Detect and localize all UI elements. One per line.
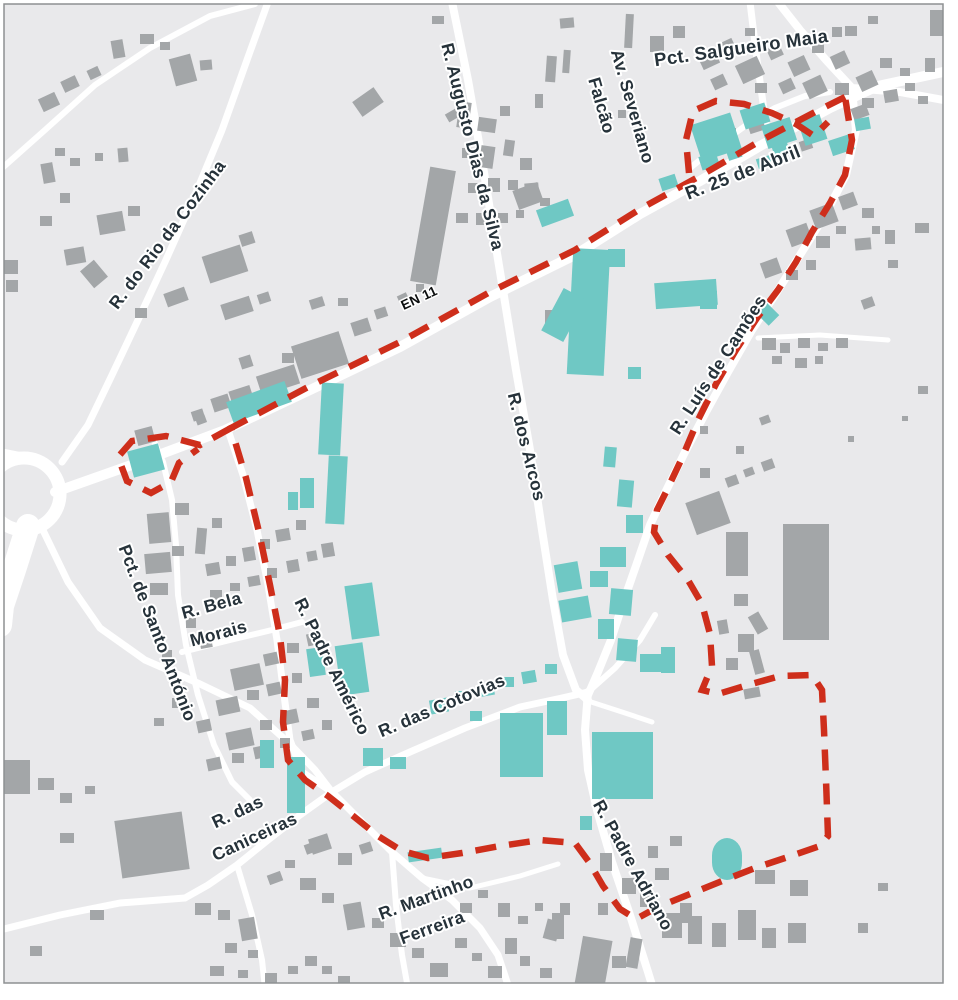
building (712, 923, 726, 947)
building (238, 970, 248, 978)
building (535, 903, 543, 911)
highlighted-building (640, 654, 662, 672)
building (210, 966, 224, 976)
highlighted-building (609, 588, 633, 616)
building (855, 237, 872, 250)
highlighted-building (325, 456, 348, 525)
building (734, 594, 748, 606)
building (648, 846, 658, 858)
building (612, 956, 626, 968)
building (680, 903, 692, 923)
building (498, 903, 510, 917)
highlighted-building (300, 478, 314, 508)
building (845, 26, 857, 36)
building (248, 950, 258, 958)
building (880, 58, 892, 68)
building (918, 386, 928, 394)
highlighted-building (580, 816, 592, 830)
highlighted-building (590, 571, 608, 587)
highlighted-building (616, 638, 638, 662)
building (902, 416, 908, 421)
building (195, 903, 211, 915)
building (888, 260, 898, 268)
building (736, 446, 744, 454)
highlighted-building (363, 748, 383, 766)
building (38, 778, 54, 790)
highlighted-building (617, 479, 634, 507)
building (508, 180, 518, 190)
building (816, 236, 830, 248)
building (673, 26, 685, 38)
highlighted-building (318, 382, 344, 455)
building (600, 853, 612, 871)
building (505, 938, 517, 954)
building (85, 786, 95, 794)
building (738, 634, 754, 652)
building (700, 426, 708, 434)
building (218, 910, 230, 920)
building (265, 973, 277, 983)
highlighted-building (626, 515, 643, 533)
building (172, 546, 184, 556)
building (670, 836, 682, 846)
building (762, 928, 776, 948)
building (285, 860, 295, 868)
building (154, 718, 164, 726)
building (560, 17, 575, 28)
building (144, 552, 172, 574)
highlighted-building (521, 670, 537, 684)
building (848, 436, 854, 442)
building (260, 720, 272, 730)
building (147, 512, 172, 544)
building (790, 880, 808, 896)
building (226, 556, 236, 566)
building (832, 27, 842, 37)
building (806, 260, 816, 270)
building (915, 223, 929, 233)
building (282, 353, 294, 363)
building (836, 338, 848, 348)
town-map-canvas: R. do Rio da CozinhaR. Augusto Dias da S… (0, 0, 958, 1000)
building (798, 338, 810, 348)
building (64, 246, 86, 265)
highlighted-building (260, 740, 274, 768)
building (516, 210, 524, 218)
building (95, 153, 103, 161)
highlighted-building (628, 367, 641, 379)
building (535, 94, 543, 108)
building (55, 148, 65, 156)
map-page: R. do Rio da CozinhaR. Augusto Dias da S… (0, 0, 958, 1000)
building (175, 503, 189, 515)
building (862, 208, 874, 218)
building (726, 658, 738, 670)
building (925, 58, 935, 72)
building (755, 870, 775, 884)
building (296, 520, 306, 530)
building (795, 358, 807, 368)
building (518, 916, 528, 924)
highlighted-building (603, 447, 617, 468)
building (60, 833, 74, 843)
highlighted-building (854, 117, 871, 131)
building (868, 16, 878, 24)
building (905, 83, 915, 91)
highlighted-building (554, 561, 582, 593)
building (338, 976, 350, 986)
highlighted-building (547, 701, 567, 735)
building (322, 720, 332, 730)
building (128, 206, 140, 216)
building (117, 148, 128, 163)
building (772, 356, 782, 364)
building (286, 559, 300, 573)
building (288, 966, 298, 974)
building (338, 298, 348, 306)
building (738, 910, 756, 940)
building (472, 953, 482, 961)
highlighted-building (598, 619, 614, 639)
building (755, 83, 767, 93)
highlighted-building (390, 757, 406, 769)
highlighted-building (287, 757, 305, 813)
building (836, 226, 846, 234)
building (135, 308, 147, 318)
building (455, 938, 467, 948)
highlighted-building (545, 664, 557, 674)
building (212, 518, 222, 528)
building (788, 923, 806, 943)
building (60, 793, 72, 803)
building (90, 910, 104, 920)
building (275, 528, 291, 542)
highlighted-building (700, 291, 717, 309)
building (520, 158, 532, 170)
building (456, 213, 468, 223)
building (247, 690, 259, 700)
building (432, 16, 444, 24)
building (247, 575, 261, 587)
building (114, 812, 189, 879)
building (815, 356, 823, 364)
building (412, 948, 424, 958)
highlighted-building (288, 492, 298, 510)
building (307, 698, 319, 708)
building (338, 853, 352, 865)
building (305, 956, 317, 966)
building (322, 966, 332, 974)
highlighted-building (608, 249, 625, 267)
building (818, 343, 828, 351)
building (883, 89, 899, 103)
building (700, 468, 710, 478)
highlighted-building (592, 732, 653, 799)
building (60, 193, 70, 203)
building (545, 56, 557, 83)
building (200, 59, 213, 70)
building (140, 34, 154, 44)
building (430, 963, 448, 977)
building (40, 216, 52, 226)
building (30, 946, 42, 956)
building (225, 943, 237, 953)
building (232, 753, 244, 763)
building (321, 542, 335, 558)
building (655, 868, 669, 880)
highlighted-building (500, 713, 543, 777)
building (858, 923, 868, 933)
building (322, 893, 334, 903)
building (878, 883, 888, 891)
building (560, 903, 570, 915)
building (478, 890, 488, 898)
building (762, 338, 776, 350)
building (900, 68, 910, 76)
highlighted-building (470, 711, 482, 721)
building (292, 673, 302, 683)
building (160, 42, 170, 50)
building (300, 878, 316, 890)
building (287, 643, 299, 653)
building (540, 968, 552, 978)
building (872, 226, 880, 234)
highlighted-building (600, 547, 626, 567)
building (918, 96, 928, 104)
building (783, 524, 829, 640)
building (500, 106, 510, 116)
building (205, 562, 221, 576)
building (885, 230, 895, 244)
building (70, 158, 80, 166)
building (780, 343, 790, 353)
building (726, 532, 748, 576)
highlighted-building (661, 647, 675, 673)
building (835, 83, 849, 95)
building (242, 546, 256, 562)
building (6, 280, 18, 292)
building (520, 956, 530, 966)
building (306, 550, 318, 562)
building (488, 966, 502, 978)
building (598, 903, 608, 915)
